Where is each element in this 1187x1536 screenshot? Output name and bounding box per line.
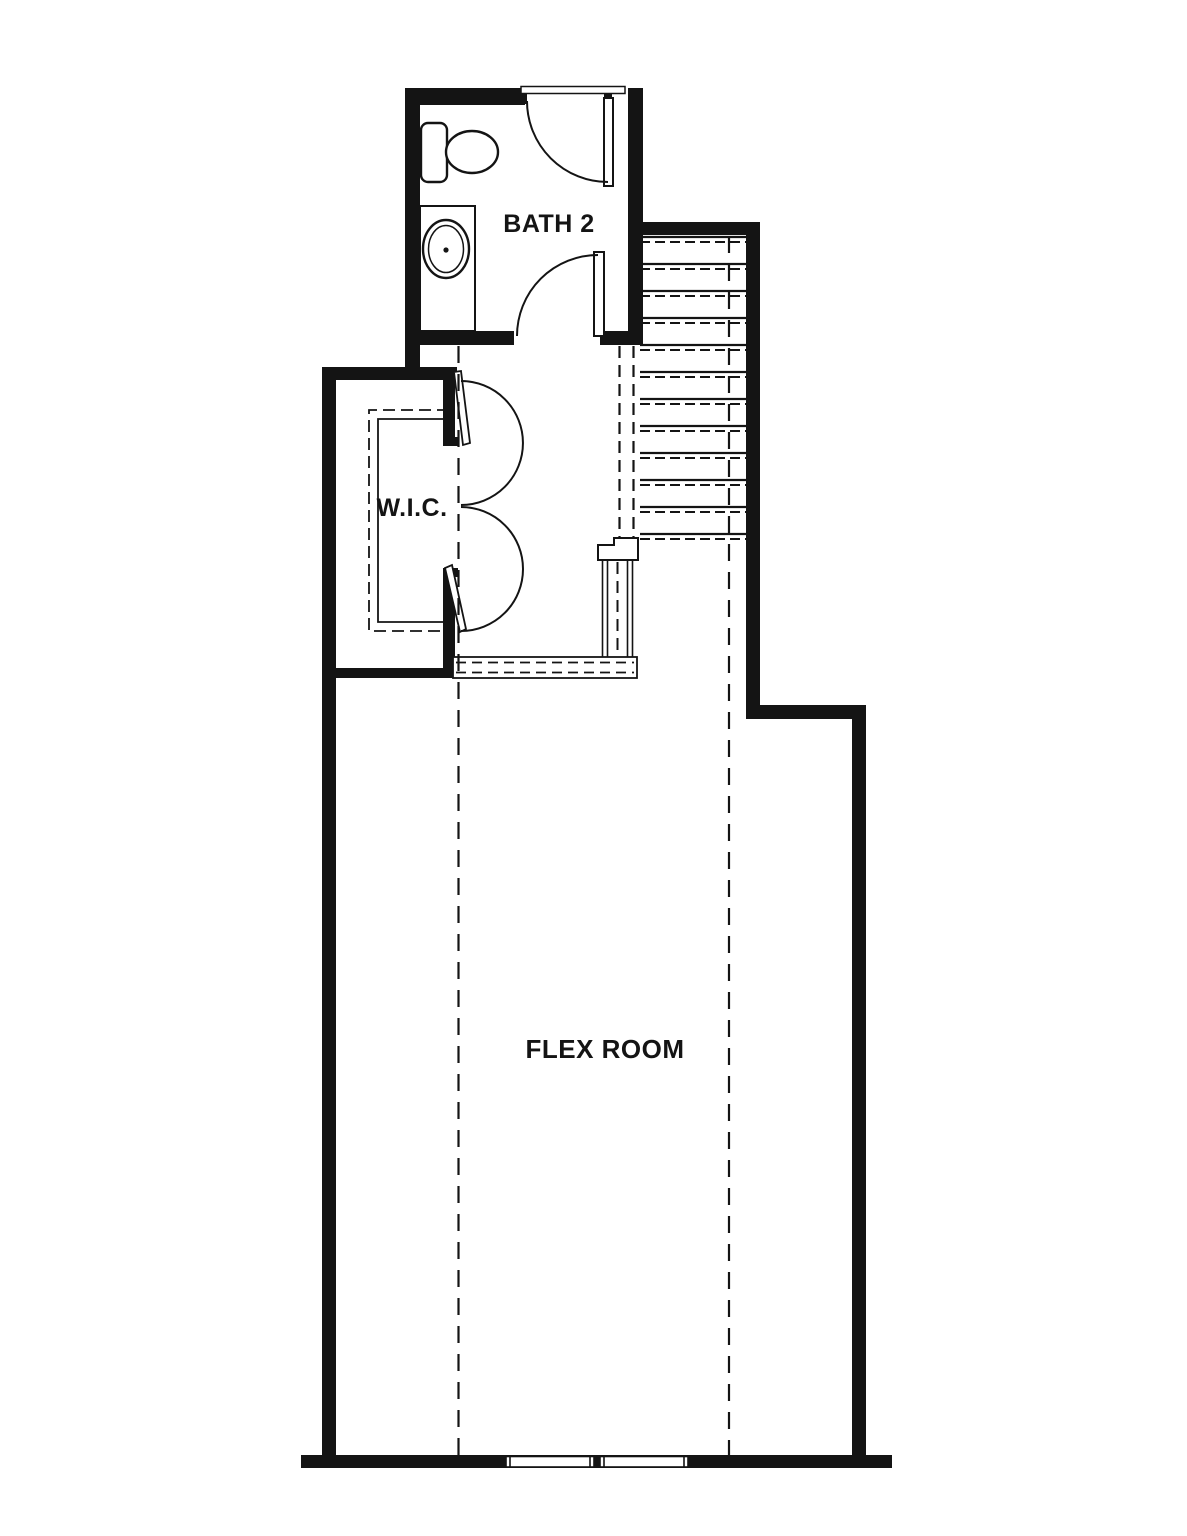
wall-stairs-right [746,222,760,719]
bath-entry-door [521,87,625,187]
wall-bath-right [628,88,643,345]
door-swing-arc [517,255,598,336]
toilet-fixture [421,123,498,182]
wall-stairs-top [643,222,760,235]
bath-hall-door [517,252,604,336]
room-label-flex: FLEX ROOM [525,1034,684,1064]
window-1 [506,1457,594,1468]
wall-wic-stub-upper [443,380,455,437]
wall-bottom-exterior [301,1455,892,1468]
door-threshold [521,87,625,94]
toilet-tank [421,123,447,182]
hall-half-wall [603,560,633,659]
hall-low-shelf [453,657,637,678]
window-2 [600,1457,688,1468]
wic-double-doors [445,371,523,632]
door-swing-arc [527,101,608,182]
wall-wic-bottom [322,668,457,678]
wall-wic-top [322,367,457,380]
lower-door-swing-arc [461,507,523,631]
toilet-bowl [446,131,498,173]
wall-bath-top [405,88,525,105]
wall-step-out [746,705,866,719]
ceiling-break-lines [459,236,730,1455]
room-label-bath2: BATH 2 [503,210,594,238]
sink-drain [443,247,448,252]
wall-right-exterior [852,705,866,1460]
wall-bath-bottom-right [600,331,643,345]
wall-bath-bottom-left [405,331,514,345]
door-leaf [594,252,604,336]
vanity-sink-fixture [420,206,475,331]
low-shelf-outline [453,657,637,678]
floor-plan-drawing: BATH 2 W.I.C. FLEX ROOM [0,0,1187,1536]
floor-plan-page: BATH 2 W.I.C. FLEX ROOM [0,0,1187,1536]
stair-railing [620,346,634,538]
newel-post [598,538,638,560]
wall-left-exterior [322,367,336,1460]
room-label-wic: W.I.C. [376,494,447,522]
door-leaf [604,98,613,186]
wall-wic-stub-upper-tab [443,437,458,446]
railing-dashed-sides [620,346,634,538]
